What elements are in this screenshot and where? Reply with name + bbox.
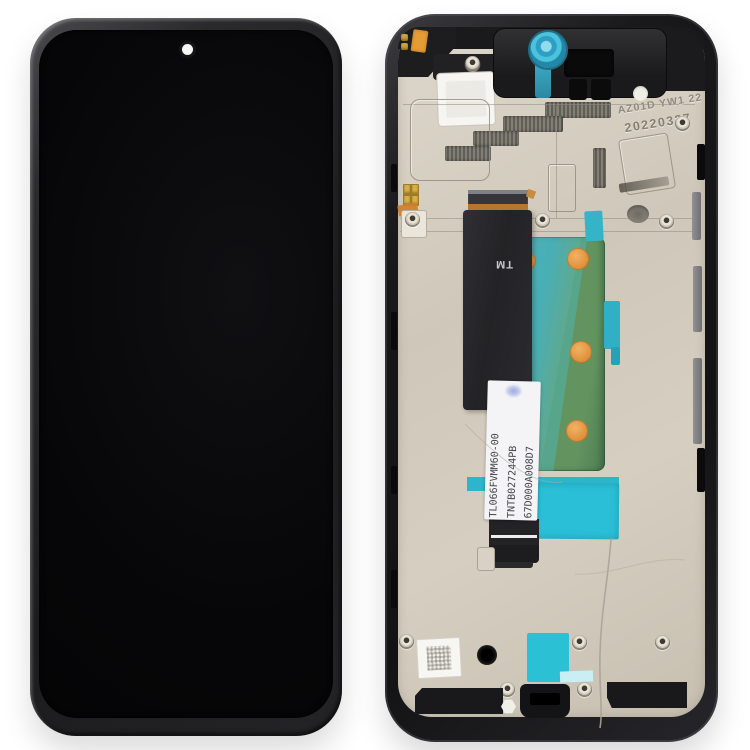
camera-cutout-aux [569, 79, 587, 100]
flex-label-line: TL066FVMM60-00 [486, 383, 505, 517]
lcd-screen [39, 30, 333, 718]
screw-hole [659, 214, 674, 229]
flex-label-line: TNTB027244PB [503, 383, 522, 517]
bottom-plastic-left [415, 688, 503, 714]
screw-hole [577, 682, 592, 697]
speaker-housing [520, 684, 570, 718]
cyan-strip-sticker [560, 670, 593, 682]
bottom-plastic-right [607, 682, 687, 708]
copper-trace [468, 204, 528, 210]
flex-end-line [491, 535, 537, 538]
product-photo-stage: AZ01D YW1 22 20220327 TM [0, 0, 750, 750]
engraved-square [410, 99, 490, 181]
flex-end-section [489, 545, 539, 563]
graphite-tape [503, 116, 563, 132]
orange-dot-sticker [567, 248, 589, 270]
flex-tm-marking: TM [481, 258, 527, 270]
camera-cutout-aux [591, 79, 611, 100]
flex-end-section [489, 519, 539, 547]
side-rail-slot [391, 570, 397, 608]
flex-connector [468, 190, 528, 210]
frame-tab [477, 547, 495, 571]
connector-edge [468, 190, 528, 194]
teal-pull-tab [584, 211, 604, 242]
gold-contact-pad [412, 185, 418, 194]
camera-lens-protector-film [528, 30, 568, 70]
antenna-contact [401, 43, 408, 50]
antenna-contact [401, 34, 408, 41]
flex-barcode-label: TL066FVMM60-00 TNTB027244PB 67D000A008D7 [484, 380, 541, 520]
screw-hole [405, 212, 420, 227]
flex-label-line: 67D000A008D7 [521, 384, 540, 518]
screw-hole [399, 634, 414, 649]
qr-code-sticker [416, 637, 462, 679]
screw-hole [655, 635, 670, 650]
side-rail-slot [697, 144, 705, 180]
screw-hole [572, 635, 587, 650]
graphite-tape [593, 148, 606, 188]
gold-contact-pad [404, 185, 410, 194]
engraved-rect [548, 164, 576, 212]
teal-sticker-large [534, 483, 619, 540]
qr-pattern [426, 645, 451, 670]
camera-cutout-main [564, 49, 614, 77]
lcd-front-assembly [30, 18, 342, 736]
screw-hole [675, 116, 690, 131]
flex-end-tip [493, 562, 533, 568]
speaker-slot [530, 693, 560, 705]
orange-dot-sticker [570, 341, 592, 363]
side-rail-slot [697, 448, 705, 492]
punch-hole-camera [182, 44, 193, 55]
engraved-dot [633, 86, 648, 101]
engraved-line [400, 231, 698, 232]
mid-frame-assembly: AZ01D YW1 22 20220327 TM [385, 14, 718, 742]
kapton-sticker [411, 29, 429, 53]
round-hole [477, 645, 497, 665]
orange-dot-sticker [566, 420, 588, 442]
teal-pull-tab [604, 301, 620, 349]
side-rail-slot [391, 312, 397, 350]
flex-label-text: TL066FVMM60-00 TNTB027244PB 67D000A008D7 [486, 383, 539, 518]
button-flex-sliver [693, 266, 702, 332]
teal-pull-tab [611, 347, 620, 365]
button-flex-sliver [692, 192, 701, 240]
oval-hole [627, 205, 649, 223]
side-rail-slot [391, 466, 397, 494]
screw-hole [535, 213, 550, 228]
button-flex-sliver [693, 358, 702, 444]
side-rail-slot [391, 164, 397, 192]
screw-hole [465, 56, 480, 71]
